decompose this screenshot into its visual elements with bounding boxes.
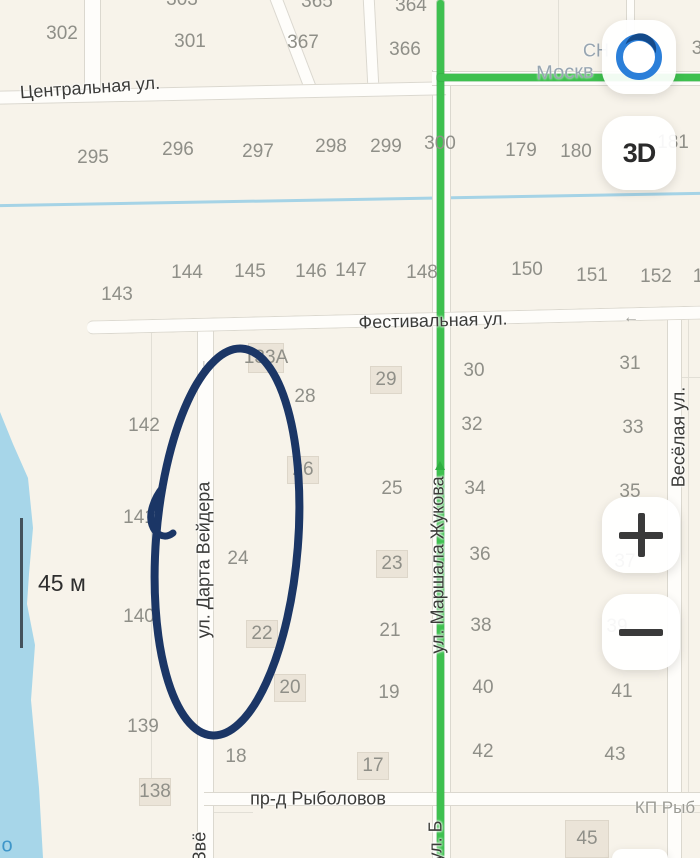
plot-number: 20	[279, 677, 300, 699]
plot-number: 152	[640, 266, 672, 288]
plot-number: 18	[225, 746, 246, 768]
scale-label: 45 м	[38, 570, 86, 597]
plot-number: 32	[461, 414, 482, 436]
plot-number: 138	[139, 781, 171, 803]
plot-number: 298	[315, 136, 347, 158]
plot-number: 25	[381, 478, 402, 500]
plot-boundary	[682, 377, 700, 378]
plot-number: 28	[294, 386, 315, 408]
building-footprint	[139, 778, 171, 806]
building-footprint	[246, 620, 278, 648]
water-river	[0, 0, 700, 858]
annotation-ellipse	[0, 0, 700, 858]
stream-line	[0, 192, 700, 207]
plot-number: 17	[362, 755, 383, 777]
3d-button-label: 3D	[623, 138, 656, 169]
plot-number: 299	[370, 136, 402, 158]
plot-number: 147	[335, 260, 367, 282]
building-footprint	[370, 366, 402, 394]
street-label-marshala-zhukova: ул. Маршала Жукова	[428, 476, 449, 653]
plot-number: 3	[692, 38, 700, 60]
plot-number: 303	[166, 0, 198, 11]
plot-number: 297	[242, 141, 274, 163]
building-footprint	[357, 752, 389, 780]
plot-boundary	[213, 812, 253, 813]
zoom-out-button[interactable]	[602, 594, 680, 670]
3d-mode-button[interactable]: 3D	[602, 116, 676, 190]
plot-number: 43	[604, 744, 625, 766]
plot-number: 150	[511, 259, 543, 281]
plot-number: 302	[46, 23, 78, 45]
zoom-in-button[interactable]	[602, 497, 680, 573]
building-footprint	[565, 820, 609, 858]
plot-number: 19	[378, 682, 399, 704]
plot-number: 180	[560, 141, 592, 163]
plot-number: 38	[470, 615, 491, 637]
plot-number: 42	[472, 741, 493, 763]
plot-number: 142	[128, 415, 160, 437]
building-footprint	[376, 550, 408, 578]
street-label-rybolovov: пр-д Рыболовов	[250, 789, 386, 810]
building-footprint	[248, 343, 284, 373]
plot-number: 29	[375, 369, 396, 391]
street-label-veselaya: Весёлая ул.	[669, 387, 690, 487]
street-label-festivalnaya: Фестивальная ул.	[358, 309, 508, 334]
plot-number: 23	[381, 553, 402, 575]
route-direction-arrow-icon	[435, 461, 445, 470]
plot-number: 22	[251, 623, 272, 645]
plot-number: 30	[463, 360, 484, 382]
plot-number: 295	[77, 147, 109, 169]
street-label-ul-b-partial: ул. Б	[426, 821, 447, 858]
plot-number: 34	[464, 478, 485, 500]
building-footprint	[274, 674, 306, 702]
plot-number: 45	[576, 828, 597, 850]
building-footprint	[287, 456, 319, 484]
plot-number: 36	[469, 544, 490, 566]
plot-number: 24	[227, 548, 248, 570]
plot-number: 145	[234, 261, 266, 283]
plot-number: 139	[127, 716, 159, 738]
settlement-label-kp-ryb: КП Рыб	[635, 798, 695, 818]
plot-number: 144	[171, 262, 203, 284]
road-lane-north3	[363, 0, 380, 86]
plot-number: 41	[611, 681, 632, 703]
plot-number: 296	[162, 139, 194, 161]
plot-number: 143	[101, 284, 133, 306]
annotation-hook-stroke	[151, 487, 173, 536]
street-label-zvezdnaya-partial: Звё	[190, 832, 211, 858]
plot-number: 301	[174, 31, 206, 53]
minus-icon	[619, 629, 663, 636]
compass-icon	[613, 31, 665, 83]
plot-number: 1	[693, 266, 700, 288]
map-canvas[interactable]: ↓ ← 303365364302301367366329529629729829…	[0, 0, 700, 858]
plot-number: 33	[622, 417, 643, 439]
plot-number: 40	[472, 677, 493, 699]
route-green-vertical	[437, 0, 444, 858]
plot-boundary	[151, 333, 152, 790]
plot-number: 31	[619, 353, 640, 375]
plot-number: 179	[505, 140, 537, 162]
oneway-down-arrow-icon: ↓	[200, 357, 208, 375]
plot-number: 133А	[244, 347, 288, 369]
street-label-darta-veidera: ул. Дарта Вейдера	[194, 482, 215, 639]
oneway-left-arrow-icon: ←	[623, 309, 639, 327]
plot-number: 21	[379, 620, 400, 642]
plot-number: 365	[301, 0, 333, 13]
water-label-letter: о	[1, 835, 12, 858]
plot-number: 26	[292, 459, 313, 481]
scale-bar	[20, 518, 23, 648]
plot-number: 151	[576, 265, 608, 287]
plot-number: 146	[295, 261, 327, 283]
plot-number: 364	[395, 0, 427, 17]
compass-location-button[interactable]	[602, 20, 676, 94]
plot-number: 366	[389, 39, 421, 61]
settlement-label-moskva: Москв	[536, 61, 594, 86]
road-lane-north2	[270, 0, 318, 93]
partial-bottom-button[interactable]	[612, 849, 668, 858]
